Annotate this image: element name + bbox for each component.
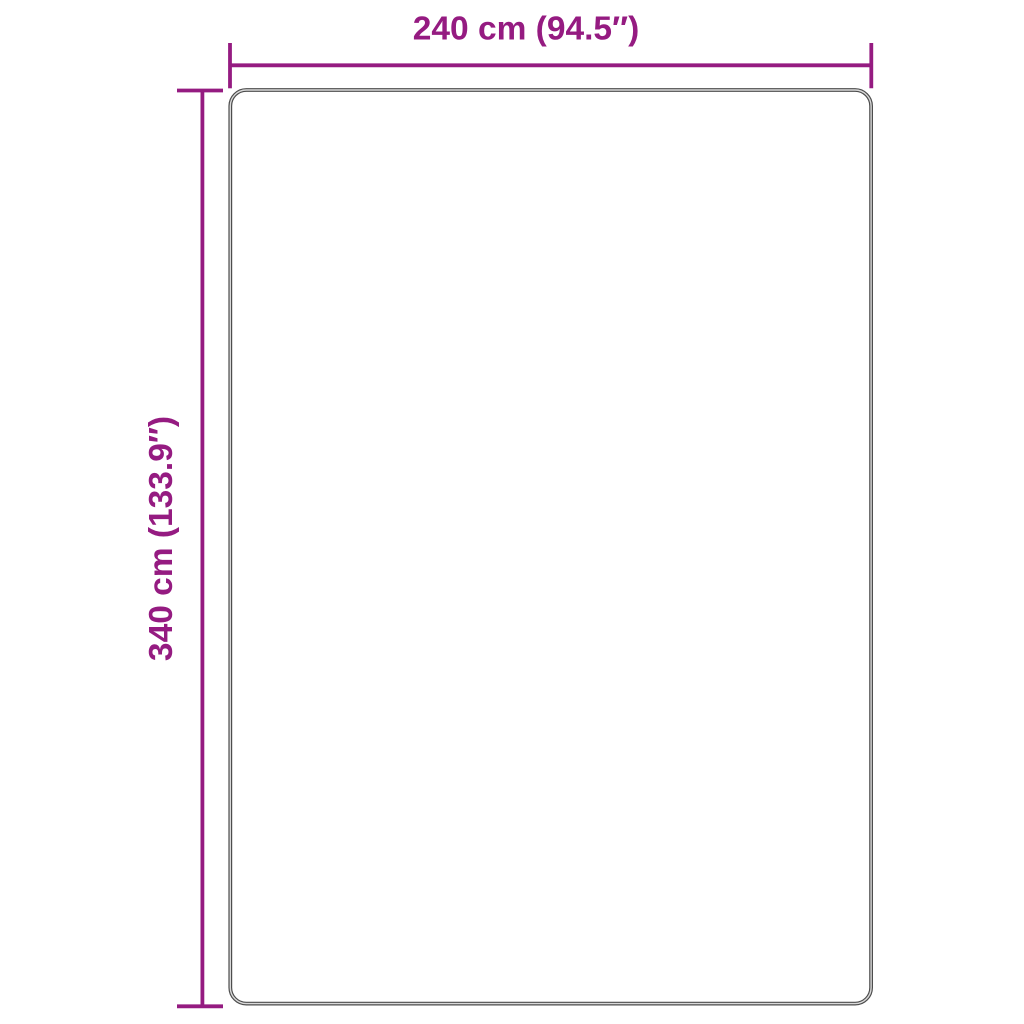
svg-text:240 cm (94.5″): 240 cm (94.5″): [413, 11, 640, 48]
svg-text:340 cm (133.9″): 340 cm (133.9″): [143, 416, 180, 661]
